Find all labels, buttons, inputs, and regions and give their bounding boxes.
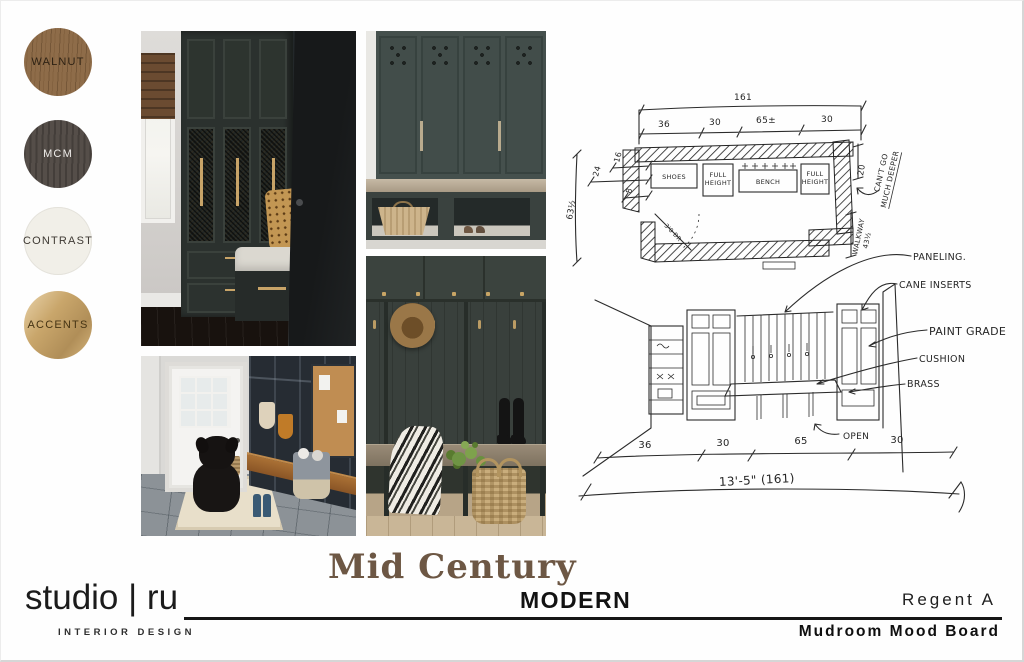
callout-open: OPEN bbox=[843, 432, 869, 442]
bench-support bbox=[463, 466, 468, 516]
brass-hook bbox=[373, 320, 376, 329]
hanging-bag-cream bbox=[259, 402, 275, 429]
gray-yarn-basket bbox=[293, 452, 330, 499]
plan-left-dim: 16 bbox=[612, 151, 623, 164]
elev-dim: 65 bbox=[794, 436, 807, 447]
elev-dim: 30 bbox=[890, 435, 903, 446]
rain-boot bbox=[499, 398, 510, 444]
mood-board-page: WALNUT MCM CONTRAST ACCENTS bbox=[0, 0, 1024, 662]
cane-mesh-door bbox=[223, 127, 251, 243]
plan-seg-label: 36 bbox=[658, 120, 670, 130]
plan-label-height: HEIGHT bbox=[705, 179, 732, 187]
dimension-lines: 36 30 65 30 13'-5" (161) bbox=[579, 435, 965, 512]
cabinet-door bbox=[505, 36, 543, 174]
green-plant bbox=[452, 452, 466, 466]
photo1-open-door bbox=[288, 31, 356, 346]
plan-label-height: HEIGHT bbox=[802, 178, 829, 186]
cabinet-door bbox=[421, 36, 459, 174]
board-title-script: Mid Century bbox=[328, 547, 577, 587]
plan-door-label: 3'0 DR bbox=[663, 223, 683, 244]
photo-entry-door-dog bbox=[141, 356, 356, 536]
callout-brass: BRASS bbox=[907, 379, 940, 390]
elev-dim-total: 13'-5" (161) bbox=[719, 471, 795, 489]
door-pull bbox=[498, 121, 501, 151]
straw-hat bbox=[390, 303, 435, 348]
studio-logo: studio | ru bbox=[25, 578, 178, 618]
swatch-walnut-label: WALNUT bbox=[31, 56, 84, 68]
photo-closed-cabinets-cubbies bbox=[366, 31, 546, 249]
blue-rain-boot bbox=[263, 494, 271, 517]
callout-cane-inserts: CANE INSERTS bbox=[899, 280, 972, 291]
swatch-mcm: MCM bbox=[24, 120, 92, 188]
door-pull bbox=[420, 121, 423, 151]
plan-dim-total: 161 bbox=[734, 93, 752, 103]
door-window-grid bbox=[179, 376, 231, 428]
swatch-accents: ACCENTS bbox=[24, 291, 92, 359]
black-dog-body bbox=[193, 462, 240, 512]
rain-boot bbox=[513, 398, 524, 444]
sketch-panel: 161 36 30 65± 30 SHOES FULL HEIGHT BENCH bbox=[561, 84, 1024, 544]
footer-divider bbox=[184, 617, 1002, 620]
bay-divider bbox=[464, 302, 468, 444]
callout-paneling: PANELING. bbox=[913, 252, 966, 263]
photo2-floor bbox=[366, 240, 546, 249]
bay-divider bbox=[542, 302, 546, 444]
black-dog-head bbox=[199, 436, 235, 469]
photo2-cabinets bbox=[376, 31, 546, 179]
bench-support bbox=[540, 466, 545, 516]
pair-of-shoes bbox=[464, 226, 473, 233]
plan-left-dim: 24 bbox=[591, 165, 602, 178]
woven-basket bbox=[472, 468, 526, 524]
photo-cabinet-bench-nook bbox=[141, 31, 356, 346]
cabinet-panel bbox=[259, 39, 287, 119]
plan-label-full: FULL bbox=[807, 170, 824, 178]
striped-blanket bbox=[388, 425, 445, 516]
straw-basket-bag bbox=[378, 207, 430, 235]
photo2-bench-top bbox=[366, 179, 546, 192]
photo1-roman-shade bbox=[141, 53, 175, 119]
plan-label-full: FULL bbox=[710, 171, 727, 179]
floor-plan-sketch: 161 36 30 65± 30 SHOES FULL HEIGHT BENCH bbox=[565, 93, 902, 269]
brass-hook bbox=[513, 320, 516, 329]
cabinet-panel bbox=[187, 39, 215, 119]
project-name: Regent A bbox=[902, 590, 996, 610]
swatch-contrast: CONTRAST bbox=[24, 207, 92, 275]
elev-dim: 36 bbox=[638, 440, 651, 451]
plan-seg-label: 30 bbox=[821, 115, 833, 125]
cork-board bbox=[311, 364, 356, 458]
studio-tagline: INTERIOR DESIGN bbox=[58, 627, 195, 638]
plan-right-depth: 20 bbox=[856, 164, 868, 177]
bay-divider bbox=[384, 302, 388, 444]
cane-mesh-door bbox=[187, 127, 215, 243]
swatch-walnut: WALNUT bbox=[24, 28, 92, 96]
swatch-contrast-label: CONTRAST bbox=[23, 235, 93, 247]
plan-left-total: 63½ bbox=[565, 199, 578, 220]
brass-hook bbox=[478, 320, 481, 329]
swatch-accents-label: ACCENTS bbox=[28, 319, 89, 331]
blue-rain-boot bbox=[253, 494, 261, 517]
board-name: Mudroom Mood Board bbox=[799, 623, 1000, 641]
elev-dim: 30 bbox=[716, 438, 729, 449]
photo-open-lockers-hat-boots bbox=[366, 256, 546, 536]
plan-seg-label: 65± bbox=[756, 116, 776, 126]
brass-knobs bbox=[366, 291, 546, 298]
cabinet-door bbox=[463, 36, 501, 174]
plan-label-bench: BENCH bbox=[756, 178, 780, 186]
plan-seg-label: 30 bbox=[709, 118, 721, 128]
plan-label-shoes: SHOES bbox=[662, 173, 686, 181]
swatch-mcm-label: MCM bbox=[43, 148, 73, 160]
board-title-sub: MODERN bbox=[520, 587, 631, 614]
callout-paint-grade: PAINT GRADE bbox=[929, 325, 1006, 338]
callout-cushion: CUSHION bbox=[919, 354, 965, 365]
cabinet-door bbox=[379, 36, 417, 174]
cabinet-panel bbox=[223, 39, 251, 119]
hanging-bag-orange bbox=[278, 414, 293, 439]
